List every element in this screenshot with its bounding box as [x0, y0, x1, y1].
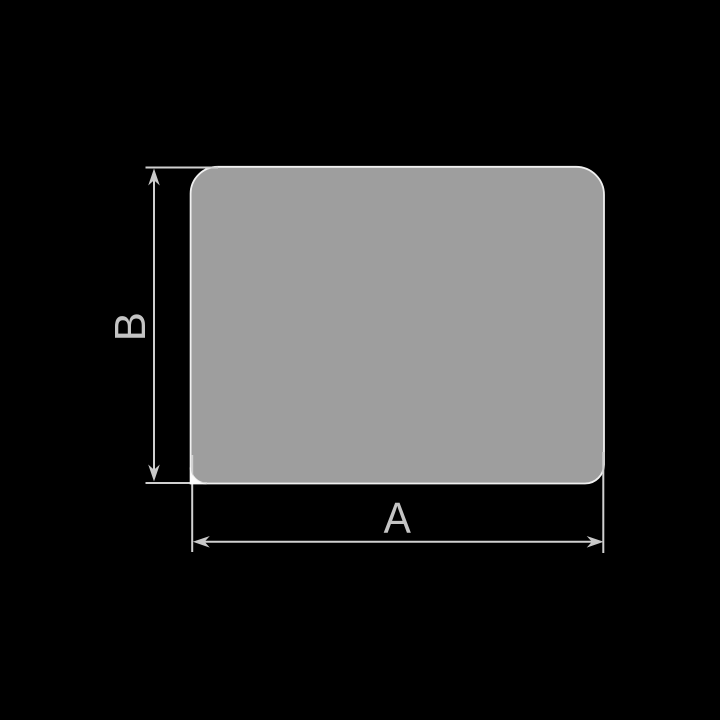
svg-text:A: A	[384, 494, 412, 543]
svg-text:B: B	[106, 312, 155, 341]
